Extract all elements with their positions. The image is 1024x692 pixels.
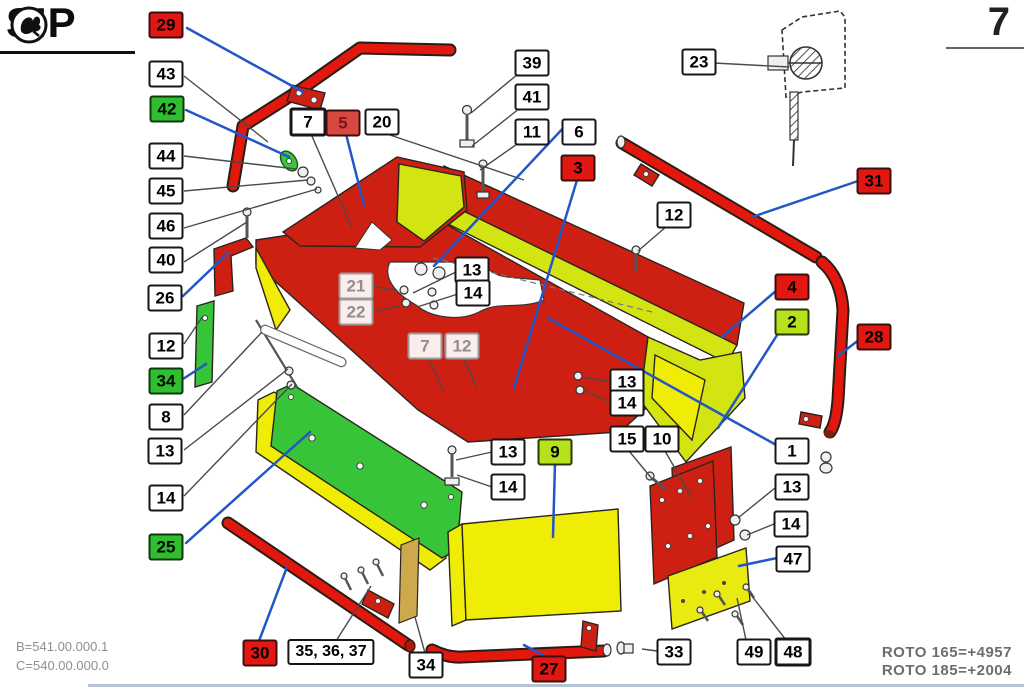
callout-33: 33 [657, 639, 692, 666]
tube-27 [432, 621, 611, 657]
green-side-strip [195, 301, 214, 387]
drawing-codes: B=541.00.000.1C=540.00.000.0 [16, 638, 109, 676]
callout-10: 10 [645, 426, 680, 453]
callout-30: 30 [243, 640, 278, 667]
callout-1: 1 [775, 438, 810, 465]
callout-44: 44 [149, 143, 184, 170]
callout-39: 39 [515, 50, 550, 77]
model-line-1: ROTO 165=+4957 [882, 644, 1012, 662]
callout-13-d: 13 [775, 474, 810, 501]
lower-yellow-box [448, 509, 621, 626]
callout-13-a: 13 [148, 438, 183, 465]
callout-8: 8 [149, 404, 184, 431]
callout-12-c: 12 [445, 333, 480, 360]
callout-40: 40 [149, 247, 184, 274]
callout-13-e: 13 [491, 439, 526, 466]
callout-3: 3 [561, 155, 596, 182]
callout-23: 23 [682, 49, 717, 76]
callout-22: 22 [339, 299, 374, 326]
angle-bracket-26 [214, 238, 253, 296]
callout-14-a: 14 [149, 485, 184, 512]
model-applicability: ROTO 165=+4957ROTO 185=+2004 [882, 644, 1012, 680]
callout-45: 45 [149, 178, 184, 205]
callout-25: 25 [149, 534, 184, 561]
callout-6: 6 [562, 119, 597, 146]
callout-27: 27 [532, 656, 567, 683]
callout-29: 29 [149, 12, 184, 39]
callout-46: 46 [149, 213, 184, 240]
inset-bracket-detail [768, 11, 845, 166]
callout-12-a: 12 [149, 333, 184, 360]
callout-14-d: 14 [774, 511, 809, 538]
callout-47: 47 [776, 546, 811, 573]
tube-31 [617, 136, 816, 257]
callout-42: 42 [150, 96, 185, 123]
callout-15: 15 [610, 426, 645, 453]
callout-14-c: 14 [610, 390, 645, 417]
callout-4: 4 [775, 274, 810, 301]
callout-49: 49 [737, 639, 772, 666]
callout-34-a: 34 [149, 368, 184, 395]
drawing-code-1: B=541.00.000.1 [16, 638, 109, 657]
callout-2: 2 [775, 309, 810, 336]
bottom-rule [88, 684, 1024, 687]
catalog-page: SIP 7 [0, 0, 1024, 692]
callout-12-b: 12 [657, 202, 692, 229]
callout-35-36-37: 35, 36, 37 [287, 639, 374, 665]
callout-31: 31 [857, 168, 892, 195]
callout-41: 41 [515, 84, 550, 111]
callout-48: 48 [775, 638, 812, 667]
callout-20: 20 [365, 109, 400, 136]
callout-14-e: 14 [491, 474, 526, 501]
callout-34-b: 34 [409, 652, 444, 679]
tube-30 [228, 523, 415, 652]
callout-5: 5 [326, 110, 361, 137]
callout-26: 26 [148, 285, 183, 312]
callout-9: 9 [538, 439, 573, 466]
callout-43: 43 [149, 61, 184, 88]
model-line-2: ROTO 185=+2004 [882, 662, 1012, 680]
callout-21: 21 [339, 273, 374, 300]
callout-11: 11 [515, 119, 550, 146]
callout-7-a: 7 [290, 108, 327, 137]
callout-14-b: 14 [456, 280, 491, 307]
callout-28: 28 [857, 324, 892, 351]
tan-strip [399, 538, 419, 623]
drawing-code-2: C=540.00.000.0 [16, 657, 109, 676]
callout-7-b: 7 [408, 333, 443, 360]
